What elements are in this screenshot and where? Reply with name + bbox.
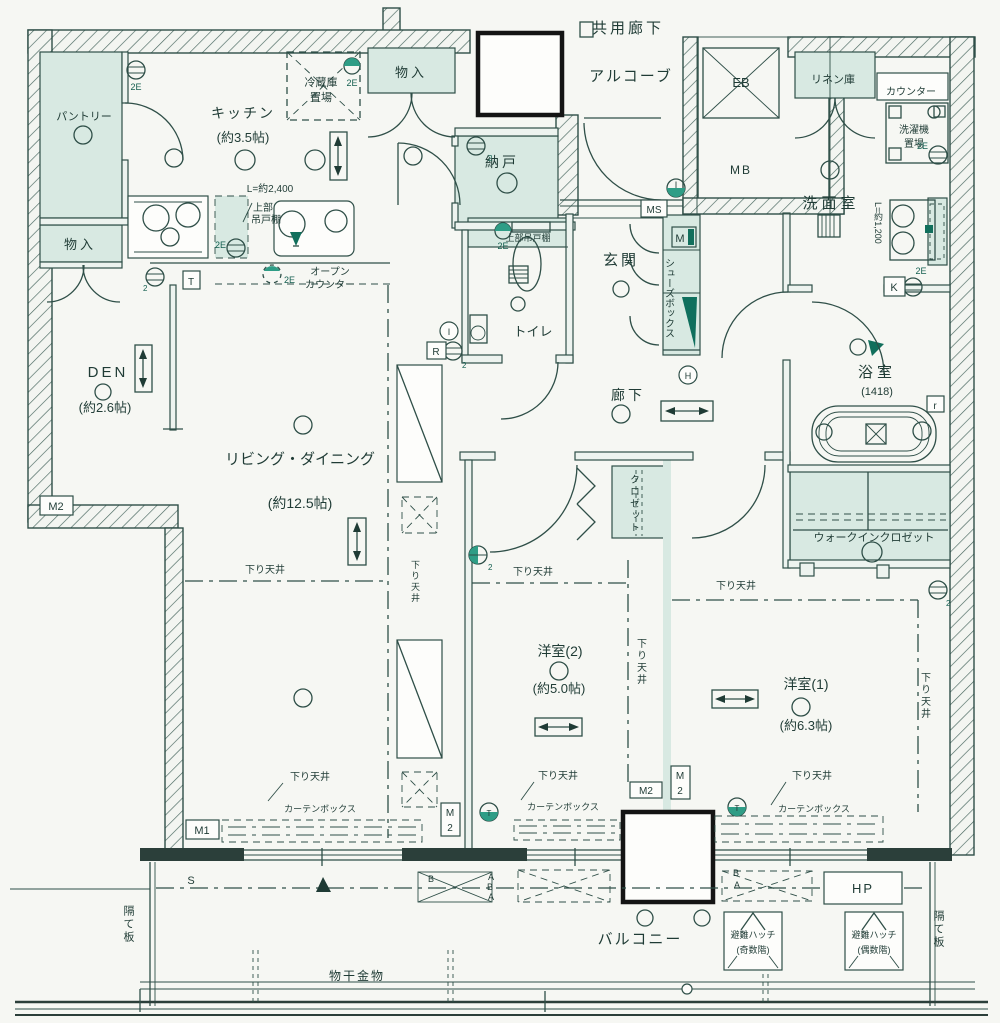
label-western1-size: (約6.3帖) (780, 718, 833, 733)
e2-1: 2E (130, 82, 141, 92)
m2-label-w1: M2 (639, 786, 653, 797)
label-genkan: 玄関 (603, 252, 639, 269)
label-kitchen-l: L=約2,400 (247, 182, 294, 195)
wall-top-chimney (383, 8, 400, 32)
k-label: K (890, 282, 898, 294)
den-slide-arrow (135, 345, 152, 392)
south-wall-windows (140, 848, 952, 866)
wall-ld-left (165, 528, 183, 858)
label-partition-right: 隔て板 (932, 910, 945, 949)
label-living: リビング・ダイニング (225, 451, 375, 468)
wic-area (790, 470, 950, 565)
label-western2-size: (約5.0帖) (533, 681, 586, 696)
label-den-size: (約2.6帖) (79, 400, 132, 415)
western1-slide-arrow (712, 690, 758, 708)
two-3: 2 (462, 361, 467, 370)
label-western2: 洋室(2) (537, 643, 582, 659)
s-label: S (187, 875, 194, 887)
m2v1-2: 2 (447, 823, 453, 834)
label-downceil-ld-bot: 下り天井 (290, 770, 330, 783)
label-upper-cab-toilet: 上部吊戸棚 (505, 232, 550, 243)
outlet-2e-fridge (344, 58, 360, 74)
label-upper2: 吊戸棚 (251, 213, 281, 226)
evac-hatch-even-box (845, 912, 903, 970)
outlet-2e-kitchen-wall (127, 61, 145, 79)
label-fridge1: 冷蔵庫 (305, 75, 338, 89)
label-evac1-floor: (奇数階) (737, 944, 770, 955)
m2v2-2: 2 (677, 786, 683, 797)
label-downceil-w1-top: 下り天井 (716, 579, 756, 592)
b-label3: B (733, 868, 739, 878)
western2-slide-arrow (535, 718, 582, 736)
label-vanity-l: L=約1,200 (873, 202, 883, 244)
i-label-ld: I (448, 327, 451, 337)
label-corridor: 共用廊下 (592, 20, 664, 37)
two-2: 2 (143, 284, 148, 293)
drain-icon (682, 984, 692, 994)
e2-4: 2E (215, 240, 226, 250)
two-4: 2 (488, 563, 493, 572)
floor-plan-page: 共用廊下 アルコーブ パントリー キッチン (約3.5帖) DEN (約2.6帖… (0, 0, 1000, 1023)
e2-3: 2E (497, 241, 508, 251)
outlet-2-western1 (929, 581, 947, 599)
bathtub (812, 406, 936, 462)
m2-label-left: M2 (48, 501, 63, 513)
label-kitchen-size: (約3.5帖) (217, 130, 270, 145)
eb-label: EB (732, 75, 749, 90)
outlet-2e-counter (263, 265, 281, 283)
label-open2: カウンター (305, 279, 355, 291)
two-5: 2 (946, 599, 951, 608)
pantry-area (40, 52, 122, 218)
h-label: H (685, 371, 692, 381)
shower-icon (850, 339, 866, 355)
mb-label: MB (730, 163, 752, 177)
label-pantry: パントリー (56, 110, 112, 123)
stove (274, 201, 354, 256)
b-label1: B (428, 874, 434, 884)
label-western1: 洋室(1) (783, 676, 828, 692)
label-toilet: トイレ (513, 324, 552, 339)
t-circle2-label: T (735, 804, 740, 813)
label-alcove: アルコーブ (589, 67, 673, 85)
ld-slide-arrow (348, 518, 366, 565)
label-den: DEN (88, 364, 129, 381)
kitchen-slide-arrow (330, 132, 347, 180)
label-living-size: (約12.5帖) (268, 495, 333, 511)
hp-label: HP (852, 881, 874, 896)
label-closet: クロゼット (628, 474, 640, 534)
label-evac1: 避難ハッチ (730, 929, 775, 940)
e2-6: 2E (917, 141, 928, 151)
label-laundry: 物干金物 (329, 968, 385, 983)
label-open1: オープン (310, 266, 349, 278)
label-monoire-left: 物入 (64, 237, 96, 252)
label-curtain-w2: カーテンボックス (527, 802, 599, 812)
hall-slide-arrow (661, 401, 713, 421)
label-downceil-col: 下り天井 (410, 560, 420, 604)
heater-icon (818, 215, 840, 237)
closet-area (612, 466, 668, 538)
wall-western-divider (663, 460, 671, 850)
entry-triangle-icon (316, 877, 331, 892)
outlet-2e-washer (929, 146, 947, 164)
label-washroom: 洗面室 (802, 195, 859, 212)
a-label2: A (488, 892, 494, 902)
window-western1 (713, 848, 867, 866)
r-label: R (432, 347, 439, 358)
label-curtain-w1: カーテンボックス (778, 804, 850, 814)
ms-label: MS (647, 205, 662, 216)
label-upper1: 上部 (253, 201, 273, 214)
e2-7: 2E (915, 266, 926, 276)
floor-plan-drawing: 共用廊下 アルコーブ パントリー キッチン (約3.5帖) DEN (約2.6帖… (0, 0, 1000, 1023)
label-downceil-right: 下り天井 (919, 672, 931, 720)
label-evac2-floor: (偶数階) (858, 944, 891, 955)
bifold-doors-icon (577, 468, 595, 540)
shaft-box (478, 33, 562, 115)
label-linen: リネン庫 (811, 72, 855, 86)
a-label1: A (488, 872, 494, 882)
label-counter: カウンター (886, 86, 936, 98)
evac-hatch-odd-box (724, 912, 782, 970)
m1-label: M1 (194, 825, 209, 837)
label-shoes: シューズボックス (663, 258, 675, 338)
label-downceil-w2-top: 下り天井 (513, 565, 553, 578)
label-downceil-w2-bot: 下り天井 (538, 769, 578, 782)
label-evac2: 避難ハッチ (851, 929, 896, 940)
label-bathroom: 浴室 (858, 364, 896, 381)
label-kitchen: キッチン (211, 105, 275, 121)
e2-2: 2E (346, 78, 357, 88)
wall-right (950, 37, 974, 855)
window-western2 (527, 848, 623, 866)
e2-5: 2E (284, 275, 295, 285)
outlet-2-monoire (146, 268, 164, 286)
two-1: 2 (488, 154, 493, 163)
label-balcony: バルコニー (598, 931, 683, 948)
window-living (244, 848, 402, 866)
label-downceil-ld-top: 下り天井 (245, 563, 285, 576)
label-wic: ウォークインクロゼット (814, 531, 935, 544)
label-curtain-ld: カーテンボックス (284, 804, 356, 814)
outlet-2-western2 (469, 546, 487, 564)
balcony-area (10, 812, 988, 1015)
label-washer1: 洗濯機 (899, 123, 929, 136)
m2v1-m: M (446, 808, 454, 819)
t-circle1-label: T (487, 809, 492, 818)
i-label-genkan: I (675, 180, 678, 190)
label-bathroom-size: (1418) (861, 386, 893, 398)
bathroom-area (812, 339, 936, 462)
b-label2: B (487, 882, 493, 892)
label-partition-left: 隔て板 (122, 905, 135, 944)
label-downceil-mid: 下り天井 (635, 638, 647, 686)
m-label: M (675, 233, 684, 245)
t-box-label: T (188, 277, 194, 288)
label-monoire-top: 物入 (395, 65, 427, 80)
outlet-2-ld (444, 342, 462, 360)
label-fridge2: 置場 (310, 91, 332, 104)
nando-area (455, 136, 558, 228)
crossed-box-center (518, 870, 610, 902)
m2v2-m: M (676, 771, 684, 782)
a-label3: A (734, 880, 740, 890)
label-hall: 廊下 (611, 387, 645, 403)
label-downceil-w1-bot: 下り天井 (792, 769, 832, 782)
